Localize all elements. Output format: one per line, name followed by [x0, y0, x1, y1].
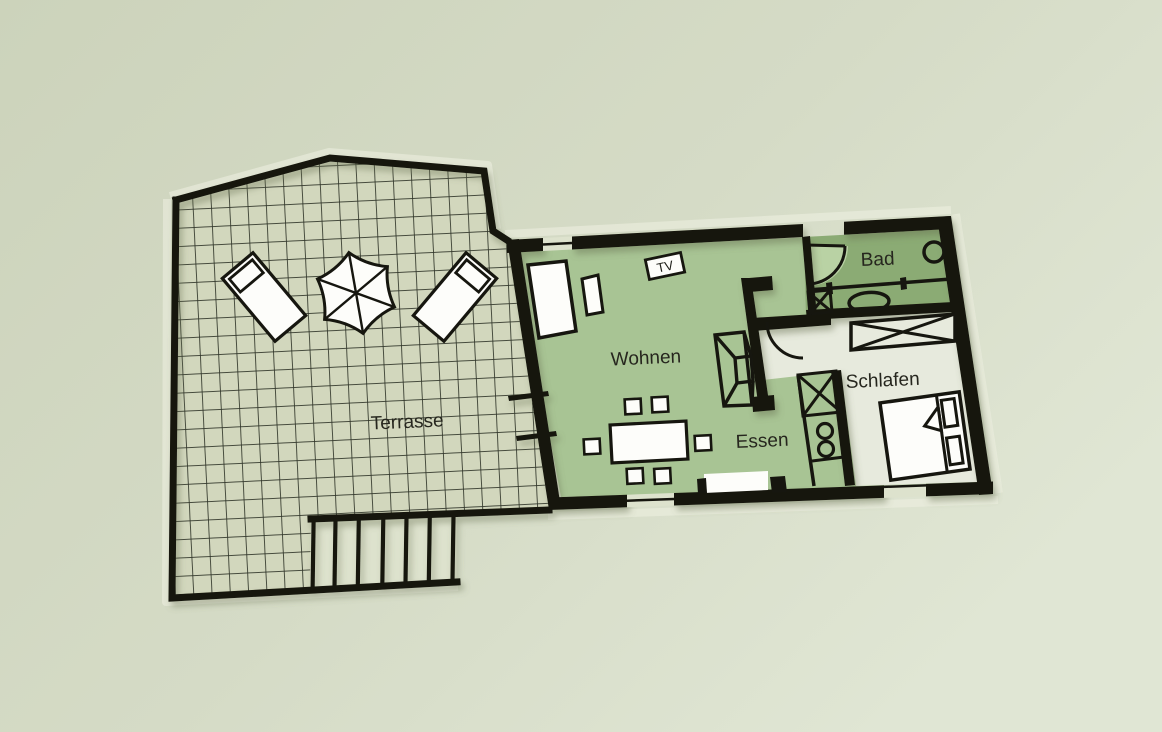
svg-text:Wohnen: Wohnen: [610, 346, 681, 370]
svg-text:Terrasse: Terrasse: [370, 410, 444, 434]
svg-text:Bad: Bad: [860, 249, 895, 271]
svg-text:Essen: Essen: [735, 430, 789, 453]
svg-text:Schlafen: Schlafen: [845, 369, 920, 393]
